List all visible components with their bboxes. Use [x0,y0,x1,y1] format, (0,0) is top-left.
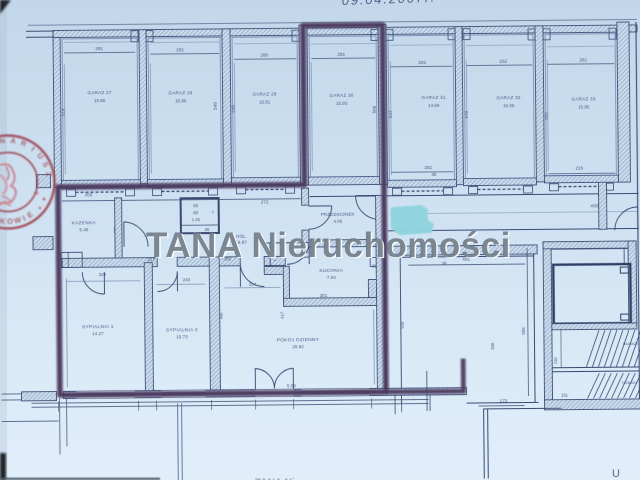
svg-text:172: 172 [500,398,508,403]
svg-text:U: U [612,468,620,480]
svg-text:SYPIALNIA 1: SYPIALNIA 1 [82,324,114,330]
svg-text:1.45: 1.45 [192,217,201,222]
svg-text:216: 216 [575,165,583,170]
svg-text:KUCHNIA: KUCHNIA [319,268,343,274]
svg-text:7x26x20: 7x26x20 [621,380,637,385]
svg-text:89: 89 [193,203,198,208]
svg-text:161: 161 [561,393,569,398]
svg-text:417: 417 [280,311,285,319]
svg-text:281: 281 [176,47,184,52]
svg-text:281: 281 [424,165,432,170]
svg-text:4.06: 4.06 [334,219,343,224]
svg-text:268: 268 [490,342,495,350]
svg-text:15.93: 15.93 [336,101,348,106]
svg-text:14.27: 14.27 [92,331,104,336]
svg-text:7.64: 7.64 [327,275,336,280]
svg-text:15.86: 15.86 [175,98,187,103]
svg-text:15.95: 15.95 [578,104,590,109]
svg-text:224: 224 [249,282,257,287]
svg-text:TANA Nieruchomości: TANA Nieruchomości [146,226,511,265]
svg-text:5.93: 5.93 [287,383,296,388]
svg-text:GARAZ 27: GARAZ 27 [87,90,111,95]
svg-text:203: 203 [85,192,93,197]
svg-text:9x26x20: 9x26x20 [623,341,639,346]
svg-text:GARAZ 31: GARAZ 31 [422,95,446,100]
svg-text:281: 281 [418,60,426,65]
svg-text:10.73: 10.73 [176,334,188,339]
svg-text:240: 240 [553,357,558,365]
svg-text:240: 240 [183,277,191,282]
svg-text:566: 566 [372,105,377,113]
svg-text:16.81: 16.81 [259,99,271,104]
svg-text:15.66: 15.66 [94,98,106,103]
svg-text:SYPIALNIA 2: SYPIALNIA 2 [166,327,198,333]
svg-text:PRZEDSIONEK: PRZEDSIONEK [321,212,355,217]
svg-text:549: 549 [213,102,218,110]
svg-text:280: 280 [260,52,268,57]
svg-text:36: 36 [431,172,437,177]
svg-text:559: 559 [400,321,405,329]
svg-text:GARAZ 28: GARAZ 28 [168,90,192,95]
svg-text:301: 301 [320,293,328,298]
svg-text:272: 272 [261,199,269,204]
svg-text:20.92: 20.92 [292,344,304,349]
svg-text:16.06: 16.06 [503,103,515,108]
svg-text:281: 281 [95,46,103,51]
svg-text:558: 558 [521,327,526,335]
svg-text:281: 281 [337,52,345,57]
svg-text:GARAZ 30: GARAZ 30 [330,93,354,98]
svg-text:KAZENKA: KAZENKA [72,220,97,225]
svg-text:GARAZ 29: GARAZ 29 [252,91,276,96]
svg-text:281: 281 [579,57,587,62]
svg-text:320: 320 [99,272,107,277]
svg-text:5.46: 5.46 [79,227,88,232]
svg-text:POKOJ DZIENNY: POKOJ DZIENNY [277,337,320,343]
svg-text:252: 252 [499,59,507,64]
svg-text:GARAZ 32: GARAZ 32 [497,95,521,100]
svg-text:GARAZ 33: GARAZ 33 [572,96,596,101]
svg-text:14.69: 14.69 [428,103,440,108]
svg-text:60: 60 [193,210,198,215]
